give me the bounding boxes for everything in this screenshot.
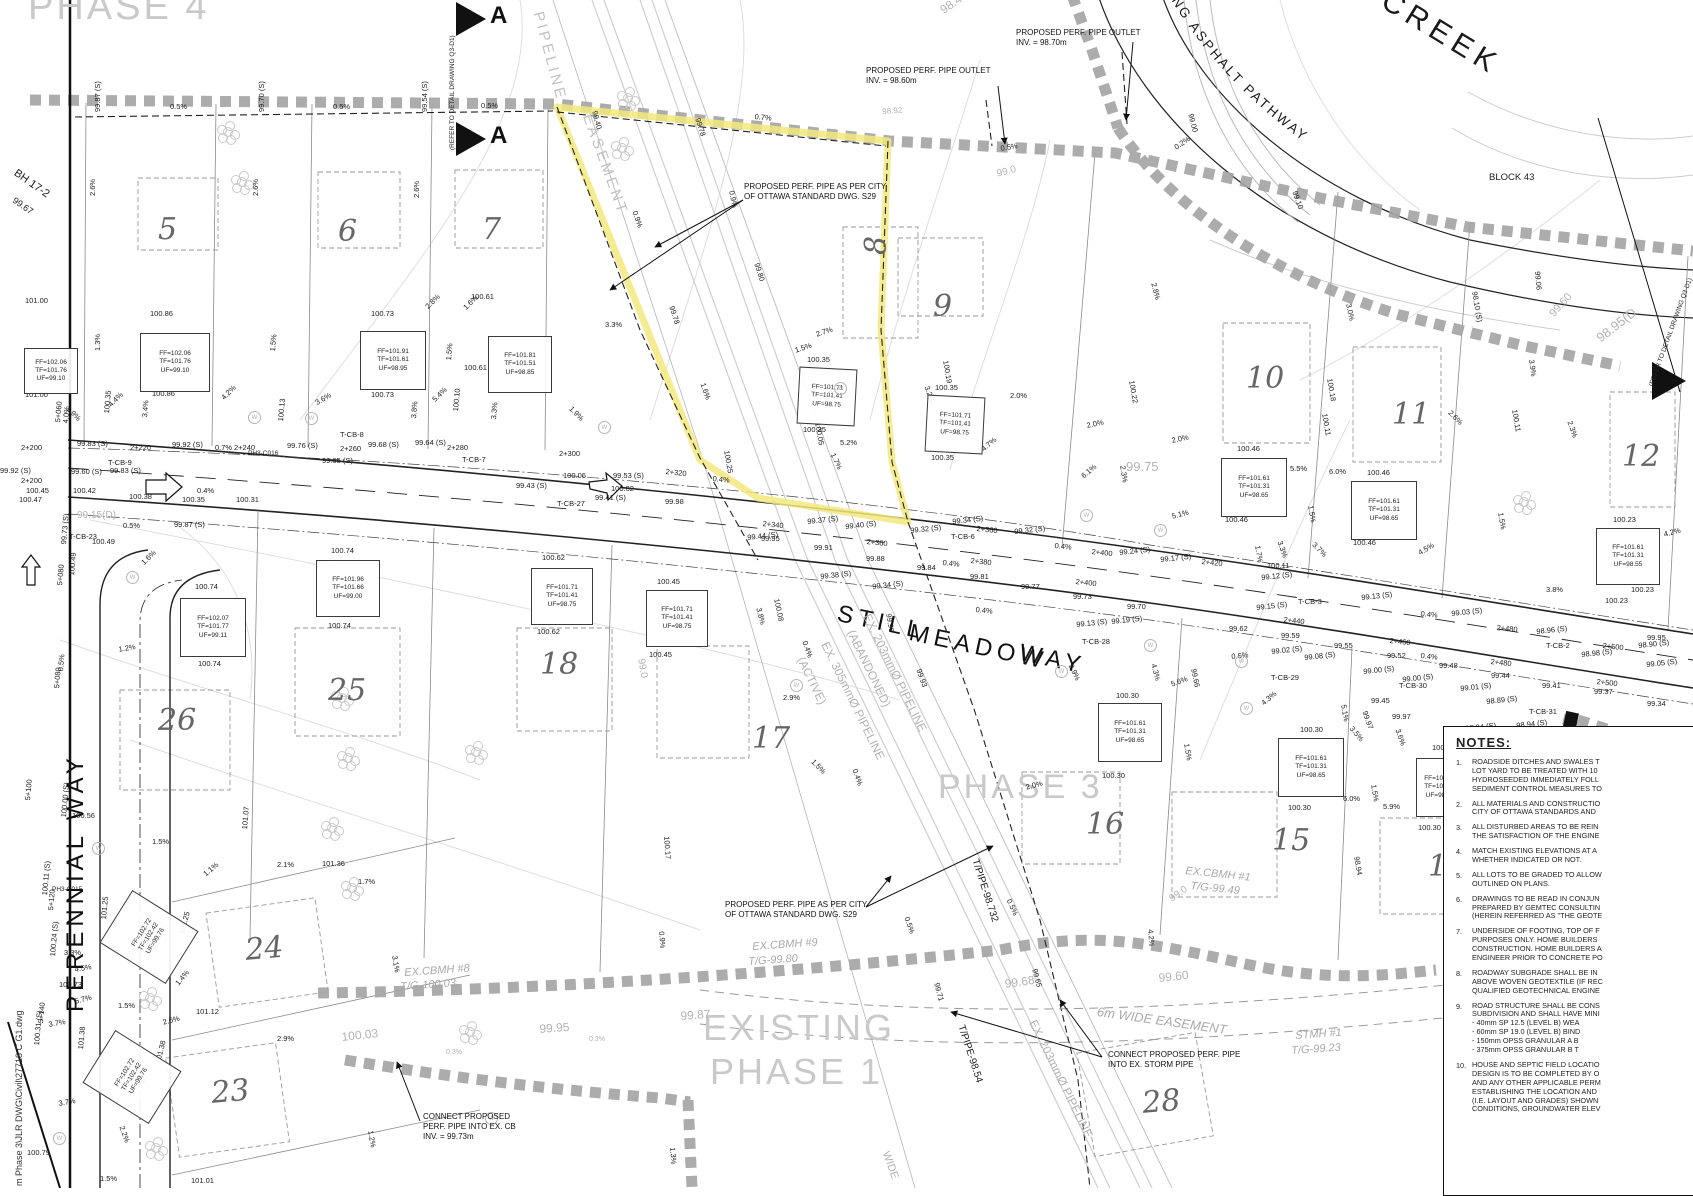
water-valve-icon: W bbox=[92, 842, 105, 855]
plan-label: 1.3% bbox=[669, 1147, 678, 1165]
plan-label: 5.5% bbox=[1290, 465, 1307, 473]
asphalt-pathway-edges bbox=[1098, 0, 1693, 318]
plan-label: 100.30 bbox=[1418, 824, 1441, 832]
tf-elevation: TF=101.77 bbox=[197, 623, 229, 631]
plan-label: 99.75 bbox=[1126, 460, 1159, 473]
plan-label: 100.17 bbox=[663, 836, 672, 860]
ff-elevation: FF=102.07 bbox=[197, 615, 229, 623]
water-valve-icon: W bbox=[834, 382, 847, 395]
plan-label: 3.3% bbox=[605, 321, 622, 329]
house-block: FF=101.71 TF=101.41 UF=98.75 bbox=[925, 395, 986, 455]
note-number: 5. bbox=[1456, 871, 1472, 889]
ff-elevation: FF=101.61 bbox=[1295, 755, 1327, 763]
plan-label: 100.74 bbox=[198, 660, 221, 668]
callout: PROPOSED PERF. PIPE AS PER CITYOF OTTAWA… bbox=[725, 900, 867, 920]
plan-label: 0.4% bbox=[942, 559, 960, 568]
plan-label: 100.30 bbox=[1300, 726, 1323, 734]
plan-label: 100.61 bbox=[464, 364, 487, 372]
plan-label: 100.31 bbox=[236, 496, 259, 504]
plan-label: 2+480 bbox=[1496, 624, 1518, 634]
note-text: ROAD STRUCTURE SHALL BE CONSSUBDIVISION … bbox=[1472, 1002, 1600, 1055]
water-valve-icon: W bbox=[305, 412, 318, 425]
ff-elevation: FF=101.81 bbox=[504, 352, 536, 360]
plan-label: 0.4% bbox=[1054, 542, 1072, 551]
callout: CONNECT PROPOSED PERF. PIPEINTO EX. STOR… bbox=[1108, 1050, 1240, 1070]
ff-elevation: FF=102.06 bbox=[35, 359, 67, 367]
plan-label: 1.7% bbox=[358, 878, 375, 886]
plan-label: 5.1% bbox=[1340, 704, 1350, 722]
plan-label: 99.44 bbox=[1491, 672, 1510, 680]
plan-label: 99.68 (S) bbox=[368, 441, 399, 449]
tf-elevation: TF=101.31 bbox=[1612, 552, 1644, 560]
lot-number: 7 bbox=[482, 215, 501, 245]
plan-label: 99.0 bbox=[635, 658, 648, 679]
tf-elevation: TF=101.31 bbox=[1114, 728, 1146, 736]
uf-elevation: UF=98.65 bbox=[1116, 737, 1145, 745]
plan-label: BLOCK 43 bbox=[1489, 173, 1534, 183]
plan-label: T-CB-8 bbox=[340, 431, 364, 439]
ff-elevation: FF=101.71 bbox=[661, 606, 693, 614]
plan-label: 99.92 (S) bbox=[0, 467, 31, 475]
tf-elevation: TF=101.76 bbox=[159, 358, 191, 366]
drawing-filename: m Phase 3\JLR DWG\Civil\27718 C G1.dwg bbox=[14, 1010, 24, 1186]
plan-label: 5+100 bbox=[24, 779, 33, 801]
plan-label: 0.5% bbox=[481, 102, 498, 110]
lot-number: 6 bbox=[338, 217, 357, 247]
plan-label: 101.07 bbox=[241, 806, 250, 830]
section-ref-top: (REFER TO DETAIL DRAWING Q3-D1) bbox=[449, 35, 456, 150]
ff-elevation: FF=101.61 bbox=[1612, 544, 1644, 552]
plan-label: 100.46 bbox=[1237, 445, 1260, 453]
plan-label: 0.4% bbox=[712, 475, 730, 484]
plan-label: 3.4% bbox=[141, 400, 150, 418]
plan-label: 100.73 bbox=[371, 310, 394, 318]
plan-label: 100.47 bbox=[19, 496, 42, 504]
plan-label: 99.48 bbox=[1439, 662, 1458, 670]
plan-label: 5+140 bbox=[37, 1002, 46, 1024]
tf-elevation: TF=101.76 bbox=[35, 367, 67, 375]
plan-label: 0.4% bbox=[975, 606, 993, 615]
plan-label: T-CB-30 bbox=[1399, 682, 1427, 690]
plan-label: 100.23 bbox=[1605, 597, 1628, 605]
house-block: FF=101.61 TF=101.31 UF=98.65 bbox=[1098, 703, 1162, 762]
plan-label: 1.7% bbox=[1254, 545, 1264, 563]
water-valve-icon: W bbox=[598, 421, 611, 434]
plan-label: 99.88 bbox=[866, 555, 885, 563]
plan-label: 99.87 (S) bbox=[174, 521, 205, 529]
plan-label: PHASE 4 bbox=[28, 0, 210, 26]
plan-label: 100.45 bbox=[657, 578, 680, 586]
water-valve-icon: W bbox=[1080, 509, 1093, 522]
lot-number: 18 bbox=[540, 650, 578, 680]
ff-elevation: FF=101.61 bbox=[1114, 720, 1146, 728]
plan-label: 101.25 bbox=[100, 896, 109, 920]
plan-label: 2+460 bbox=[1389, 637, 1411, 647]
plan-label: 99.81 bbox=[970, 573, 989, 581]
plan-label: 1.5% bbox=[1497, 512, 1507, 530]
plan-label: 100.45 bbox=[649, 651, 672, 659]
tf-elevation: TF=101.41 bbox=[546, 592, 578, 600]
note-text: ALL LOTS TO BE GRADED TO ALLOWOUTLINED O… bbox=[1472, 871, 1602, 889]
creek-label: S CREEK bbox=[1341, 0, 1506, 82]
ff-elevation: FF=101.96 bbox=[332, 576, 364, 584]
note-number: 10. bbox=[1456, 1061, 1472, 1114]
plan-label: 100.35 bbox=[803, 426, 826, 434]
note-item: 6. DRAWINGS TO BE READ IN CONJUNPREPARED… bbox=[1456, 895, 1693, 922]
tf-elevation: TF=101.61 bbox=[377, 356, 409, 364]
plan-label: 99.76 (S) bbox=[287, 442, 318, 450]
plan-label: 99.55 bbox=[1334, 642, 1353, 650]
plan-label: PHASE 3 bbox=[938, 770, 1103, 804]
plan-label: 1.5% bbox=[1307, 505, 1317, 523]
tf-elevation: TF=101.66 bbox=[332, 584, 364, 592]
plan-label: 99.98 bbox=[665, 498, 684, 506]
plan-label: 99.53 (S) bbox=[613, 472, 644, 480]
plan-label: 0.5% bbox=[170, 103, 187, 111]
plan-label: 99.59 bbox=[1281, 632, 1300, 640]
plan-label: 100.13 bbox=[277, 398, 286, 422]
plan-label: 100.06 bbox=[563, 472, 586, 480]
plan-label: 2+400 bbox=[1075, 578, 1097, 588]
house-block: FF=102.06 TF=101.76 UF=99.10 bbox=[24, 348, 78, 394]
plan-label: 100.35 bbox=[931, 454, 954, 462]
house-block: FF=101.91 TF=101.61 UF=98.95 bbox=[360, 331, 426, 390]
plan-label: 2+220 bbox=[130, 444, 151, 452]
plan-label: 99.73 bbox=[1073, 593, 1092, 601]
plan-label: 0.5% bbox=[123, 522, 140, 530]
house-block: FF=101.96 TF=101.66 UF=99.00 bbox=[316, 560, 380, 617]
plan-label: 2.9% bbox=[277, 1035, 294, 1043]
plan-label: 99.45 bbox=[1371, 697, 1390, 705]
plan-label: 100.23 bbox=[1631, 586, 1654, 594]
lot-number: 28 bbox=[1141, 1086, 1182, 1119]
plan-label: 100.23 bbox=[1613, 516, 1636, 524]
uf-elevation: UF=98.85 bbox=[506, 369, 535, 377]
callout: PROPOSED PERF. PIPE OUTLETINV. = 98.70m bbox=[1016, 28, 1140, 48]
plan-label: 100.35 bbox=[935, 384, 958, 392]
plan-label: 2+300 bbox=[559, 450, 580, 458]
uf-elevation: UF=98.75 bbox=[940, 428, 969, 438]
plan-label: T-CB-3 bbox=[1298, 598, 1322, 606]
grading-plan: S CREEK ING ASPHALT PATHWAY PHASE 4PHASE… bbox=[0, 0, 1693, 1188]
callout: PROPOSED PERF. PIPE OUTLETINV. = 98.60m bbox=[866, 66, 990, 86]
plan-label: 1.2% bbox=[367, 1130, 377, 1148]
plan-label: 2.6% bbox=[252, 179, 260, 196]
plan-label: 2.9% bbox=[783, 694, 800, 702]
uf-elevation: UF=99.10 bbox=[161, 367, 190, 375]
ff-elevation: FF=102.06 bbox=[159, 350, 191, 358]
house-block: FF=101.71 TF=101.41 UF=98.75 bbox=[531, 568, 593, 625]
house-block: FF=101.61 TF=101.31 UF=98.55 bbox=[1596, 528, 1660, 585]
ff-elevation: FF=101.61 bbox=[1238, 475, 1270, 483]
plan-label: 99.70 (S) bbox=[258, 81, 266, 112]
plan-label: 100.03 bbox=[341, 1027, 379, 1043]
plan-label: T-CB-28 bbox=[1082, 638, 1110, 646]
plan-label: 99.43 (S) bbox=[516, 482, 547, 490]
plan-label: 99.06 bbox=[1534, 271, 1543, 290]
plan-label: 5+120 bbox=[47, 889, 56, 911]
plan-label: 2.6% bbox=[413, 181, 421, 198]
uf-elevation: UF=99.11 bbox=[199, 632, 227, 640]
uf-elevation: UF=99.00 bbox=[334, 593, 363, 601]
plan-label: 99.37 bbox=[1594, 688, 1613, 696]
note-item: 4. MATCH EXISTING ELEVATIONS AT AWHETHER… bbox=[1456, 847, 1693, 865]
note-number: 4. bbox=[1456, 847, 1472, 865]
ff-elevation: FF=101.91 bbox=[377, 348, 409, 356]
plan-label: 5.2% bbox=[840, 439, 857, 447]
plan-label: 99.15(D) bbox=[77, 511, 116, 521]
plan-label: 2+480 bbox=[1490, 658, 1512, 668]
lot-number: 15 bbox=[1272, 826, 1310, 856]
plan-label: 1.5% bbox=[100, 1175, 117, 1183]
water-valve-icon: W bbox=[790, 679, 803, 692]
plan-label: 1.5% bbox=[1183, 743, 1193, 761]
plan-label: 2+500 bbox=[1602, 642, 1624, 652]
plan-label: 100.02 bbox=[611, 485, 634, 493]
note-number: 6. bbox=[1456, 895, 1472, 922]
house-block: FF=101.81 TF=101.51 UF=98.85 bbox=[488, 336, 552, 393]
plan-label: 0.9% bbox=[658, 931, 667, 949]
plan-label: 5+080 bbox=[53, 667, 62, 689]
uf-elevation: UF=98.65 bbox=[1297, 772, 1326, 780]
plan-label: 6.0% bbox=[1329, 468, 1346, 476]
plan-label: T-CB-27 bbox=[557, 500, 585, 508]
plan-label: 3.3% bbox=[490, 402, 499, 420]
tf-elevation: TF=101.41 bbox=[661, 614, 693, 622]
plan-label: T-CB-7 bbox=[462, 456, 486, 464]
water-valve-icon: W bbox=[1240, 702, 1253, 715]
plan-label: 100.45 bbox=[26, 487, 49, 495]
plan-label: 2+380 bbox=[970, 557, 992, 567]
note-number: 8. bbox=[1456, 969, 1472, 996]
uf-elevation: UF=99.10 bbox=[37, 375, 66, 383]
plan-label: 99.87 bbox=[680, 1008, 711, 1022]
lot-number: 23 bbox=[210, 1076, 251, 1109]
water-valve-icon: W bbox=[248, 411, 261, 424]
plan-label: 99.83 (S) bbox=[77, 440, 108, 448]
plan-label: 99.54 (S) bbox=[421, 81, 429, 112]
plan-label: 101.12 bbox=[196, 1008, 219, 1016]
plan-label: 0.3% bbox=[589, 1036, 605, 1043]
plan-label: 5+060 bbox=[54, 401, 63, 423]
plan-label: 99.87 (S) bbox=[94, 81, 102, 112]
lot-number: 8 bbox=[862, 236, 892, 255]
plan-label: 100.49 bbox=[68, 552, 77, 576]
plan-label: 3.8% bbox=[410, 401, 419, 419]
plan-label: 2+360 bbox=[976, 525, 998, 535]
lot-number: 16 bbox=[1086, 810, 1124, 840]
lot-number: 17 bbox=[752, 724, 790, 754]
plan-label: 0.3% bbox=[446, 1049, 462, 1056]
note-number: 3. bbox=[1456, 823, 1472, 841]
note-text: ROADWAY SUBGRADE SHALL BE INABOVE WOVEN … bbox=[1472, 969, 1603, 996]
plan-label: 98.92 bbox=[882, 107, 903, 116]
plan-label: 99.91 bbox=[814, 544, 833, 552]
plan-label: 100.11 bbox=[1267, 562, 1289, 570]
plan-label: 0.4% bbox=[1420, 610, 1438, 619]
note-item: 3. ALL DISTURBED AREAS TO BE REINTHE SAT… bbox=[1456, 823, 1693, 841]
plan-label: 2+320 bbox=[665, 468, 687, 478]
uf-elevation: UF=98.65 bbox=[1240, 492, 1269, 500]
uf-elevation: UF=98.75 bbox=[548, 601, 577, 609]
plan-label: 0.4% bbox=[197, 487, 214, 495]
plan-label: 3.8% bbox=[1546, 586, 1563, 594]
note-item: 9. ROAD STRUCTURE SHALL BE CONSSUBDIVISI… bbox=[1456, 1002, 1693, 1055]
plan-label: 100.30 bbox=[1288, 804, 1311, 812]
plan-label: 2+200 bbox=[21, 444, 42, 452]
plan-label: 99.60 (S) bbox=[71, 468, 102, 476]
plan-label: 99.60 bbox=[1158, 969, 1189, 984]
plan-label: 101.38 bbox=[77, 1026, 86, 1050]
notes-list: 1. ROADSIDE DITCHES AND SWALES TLOT YARD… bbox=[1456, 758, 1693, 1114]
plan-label: 99.70 bbox=[1127, 603, 1146, 611]
plan-label: 100.74 bbox=[195, 583, 218, 591]
water-valve-icon: W bbox=[1154, 524, 1167, 537]
house-block: FF=101.61 TF=101.31 UF=98.65 bbox=[1278, 738, 1344, 797]
house-block: FF=101.71 TF=101.41 UF=98.75 bbox=[646, 590, 708, 647]
plan-label: T-CB-29 bbox=[1271, 674, 1299, 682]
plan-label: 100.38 bbox=[129, 493, 152, 501]
plan-label: 6.0% bbox=[1343, 795, 1360, 803]
plan-label: 100.46 bbox=[1225, 516, 1248, 524]
plan-label: 2.6% bbox=[89, 179, 97, 196]
plan-label: 99.83 (S) bbox=[110, 467, 141, 475]
plan-label: T-CB-6 bbox=[951, 533, 975, 541]
notes-panel: NOTES: 1. ROADSIDE DITCHES AND SWALES TL… bbox=[1443, 726, 1693, 1196]
plan-label: 99.41 (S) bbox=[595, 494, 626, 502]
plan-label: 100.79 bbox=[27, 1149, 50, 1157]
plan-label: 100.35 bbox=[182, 496, 205, 504]
plan-label: 0.4% bbox=[1420, 652, 1438, 661]
lot-number: 10 bbox=[1246, 364, 1284, 394]
plan-label: 1.5% bbox=[118, 1002, 135, 1010]
street-label-perennial: PERENNIAL WAY bbox=[62, 753, 90, 1012]
water-valve-icon: W bbox=[1235, 655, 1248, 668]
plan-label: 2+280 bbox=[447, 444, 468, 452]
uf-elevation: UF=98.95 bbox=[379, 365, 408, 373]
note-text: MATCH EXISTING ELEVATIONS AT AWHETHER IN… bbox=[1472, 847, 1597, 865]
plan-label: 101.01 bbox=[191, 1177, 214, 1185]
tf-elevation: TF=101.51 bbox=[504, 360, 536, 368]
plan-label: 100.46 bbox=[1353, 539, 1376, 547]
plan-label: 101.36 bbox=[322, 860, 345, 868]
plan-label: T-CB-31 bbox=[1529, 708, 1557, 716]
house-block: FF=102.07 TF=101.77 UF=99.11 bbox=[180, 598, 246, 657]
plan-label: 5.9% bbox=[1383, 803, 1400, 811]
section-letter-a-top: A bbox=[490, 2, 507, 30]
plan-label: 3.1% bbox=[391, 955, 401, 973]
note-item: 10. HOUSE AND SEPTIC FIELD LOCATIODESIGN… bbox=[1456, 1061, 1693, 1114]
plan-label: 2+440 bbox=[1283, 616, 1305, 626]
plan-label: 5+080 bbox=[56, 564, 65, 586]
house-block: FF=101.61 TF=101.31 UF=98.65 bbox=[1351, 481, 1417, 540]
callout: CONNECT PROPOSEDPERF. PIPE INTO EX. CBIN… bbox=[423, 1112, 516, 1142]
plan-label: 2+360 bbox=[866, 538, 888, 548]
plan-label: 3.9% bbox=[1528, 359, 1538, 377]
plan-label: 99.65 (S) bbox=[322, 457, 353, 465]
plan-label: 101.00 bbox=[25, 297, 48, 305]
house-block: FF=101.61 TF=101.31 UF=98.65 bbox=[1221, 458, 1287, 517]
plan-label: 1.5% bbox=[1370, 784, 1380, 802]
plan-label: 99.95 bbox=[539, 1021, 570, 1035]
plan-label: 2.1% bbox=[277, 861, 294, 869]
plan-label: 100.74 bbox=[331, 547, 354, 555]
plan-label: 100.62 bbox=[542, 554, 565, 562]
plan-label: 98.94 bbox=[1353, 856, 1364, 876]
plan-label: 2+200 bbox=[21, 477, 42, 485]
plan-label: 100.74 bbox=[328, 622, 351, 630]
plan-label: 100.30 bbox=[1116, 692, 1139, 700]
lot-number: 25 bbox=[328, 676, 366, 706]
plan-label: 100.62 bbox=[537, 628, 560, 636]
note-text: DRAWINGS TO BE READ IN CONJUNPREPARED BY… bbox=[1472, 895, 1602, 922]
note-text: HOUSE AND SEPTIC FIELD LOCATIODESIGN IS … bbox=[1472, 1061, 1601, 1114]
lot-number: 11 bbox=[1392, 400, 1430, 430]
note-text: ALL DISTURBED AREAS TO BE REINTHE SATISF… bbox=[1472, 823, 1599, 841]
plan-label: 2+340 bbox=[762, 520, 784, 530]
plan-label: 1.3% bbox=[94, 334, 102, 351]
plan-label: 2+400 bbox=[1091, 548, 1113, 558]
note-item: 5. ALL LOTS TO BE GRADED TO ALLOWOUTLINE… bbox=[1456, 871, 1693, 889]
plan-label: 99.64 (S) bbox=[415, 439, 446, 447]
house-block: FF=101.71 TF=101.41 UF=98.75 bbox=[797, 367, 858, 427]
plan-label: 99.52 bbox=[1387, 652, 1406, 660]
plan-label: 0.5% bbox=[333, 103, 350, 111]
plan-label: 2.0% bbox=[1010, 392, 1027, 400]
note-number: 9. bbox=[1456, 1002, 1472, 1055]
note-text: ALL MATERIALS AND CONSTRUCTIOCITY OF OTT… bbox=[1472, 800, 1600, 818]
lot-number: 9 bbox=[933, 292, 952, 322]
plan-label: 1.5% bbox=[445, 343, 454, 361]
plan-label: 99.97 bbox=[1392, 713, 1411, 721]
plan-label: 2+420 bbox=[1201, 558, 1223, 568]
plan-label: 100.73 bbox=[371, 391, 394, 399]
plan-label: 0.7% bbox=[754, 113, 772, 122]
uf-elevation: UF=98.55 bbox=[1614, 561, 1643, 569]
plan-label: 2+260 bbox=[340, 445, 361, 453]
plan-label: 99.34 bbox=[1647, 700, 1666, 708]
note-item: 1. ROADSIDE DITCHES AND SWALES TLOT YARD… bbox=[1456, 758, 1693, 794]
plan-label: 100.10 bbox=[452, 388, 461, 412]
plan-label: 99.62 bbox=[1229, 625, 1248, 633]
callout: PROPOSED PERF. PIPE AS PER CITYOF OTTAWA… bbox=[744, 182, 886, 202]
plan-label: 1.5% bbox=[152, 838, 169, 846]
ff-elevation: FF=101.71 bbox=[546, 584, 578, 592]
plan-label: PH3-C016 bbox=[248, 451, 278, 458]
plan-label: 99.41 bbox=[1542, 682, 1561, 690]
plan-label: 99.95 bbox=[761, 535, 780, 543]
note-number: 1. bbox=[1456, 758, 1472, 794]
note-item: 7. UNDERSIDE OF FOOTING, TOP OF FPURPOSE… bbox=[1456, 927, 1693, 963]
lot-number: 5 bbox=[158, 215, 177, 245]
lot-number: 24 bbox=[244, 933, 285, 966]
lot-number: 26 bbox=[158, 706, 196, 736]
ff-elevation: FF=101.61 bbox=[1368, 498, 1400, 506]
note-text: ROADSIDE DITCHES AND SWALES TLOT YARD TO… bbox=[1472, 758, 1602, 794]
tf-elevation: TF=101.31 bbox=[1295, 763, 1327, 771]
plan-label: 100.35 bbox=[807, 356, 830, 364]
plan-label: 99.95 bbox=[1647, 634, 1666, 642]
tf-elevation: TF=101.31 bbox=[1368, 506, 1400, 514]
plan-label: 100.30 bbox=[1102, 772, 1125, 780]
note-text: UNDERSIDE OF FOOTING, TOP OF FPURPOSES O… bbox=[1472, 927, 1603, 963]
plan-label: 4.2% bbox=[1147, 929, 1156, 947]
water-valve-icon: W bbox=[53, 1132, 66, 1145]
note-number: 2. bbox=[1456, 800, 1472, 818]
plan-label: EXISTING bbox=[703, 1010, 895, 1046]
plan-label: 100.42 bbox=[73, 487, 96, 495]
uf-elevation: UF=98.65 bbox=[1370, 515, 1399, 523]
